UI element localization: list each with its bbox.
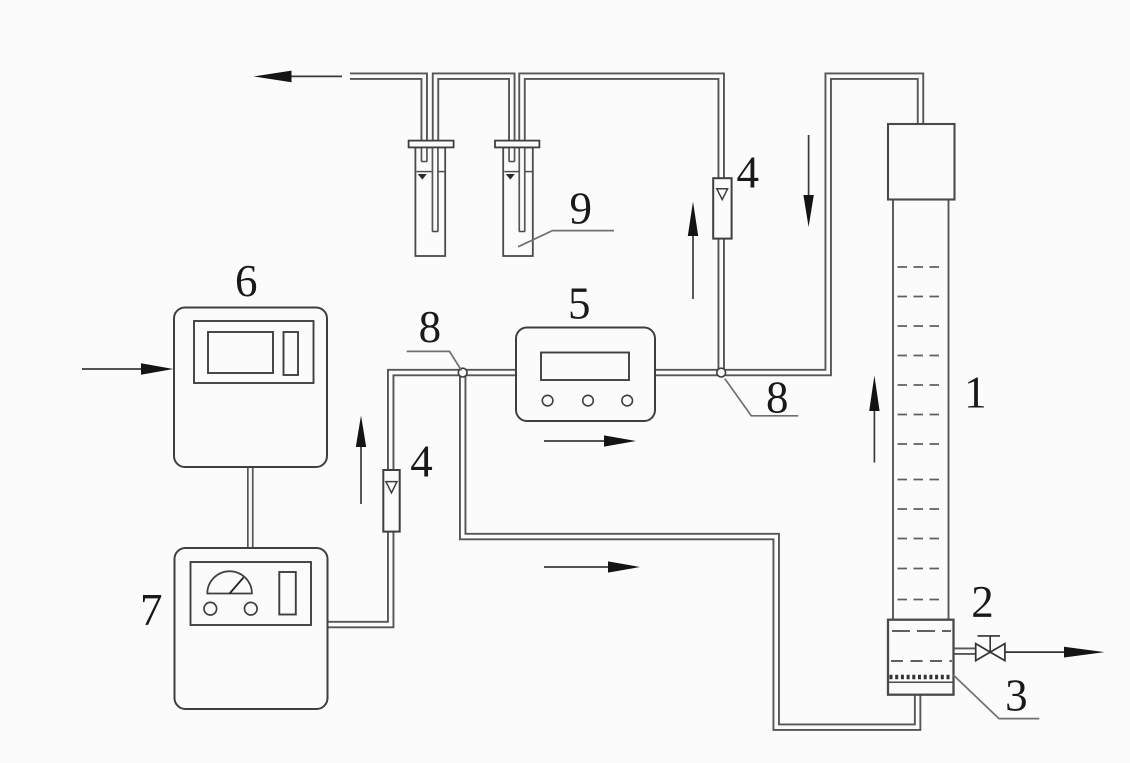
svg-text:3: 3 [1005,670,1028,720]
svg-text:2: 2 [971,577,994,627]
svg-text:9: 9 [569,183,592,233]
svg-text:7: 7 [140,585,163,635]
svg-text:4: 4 [410,437,433,487]
svg-text:8: 8 [766,373,789,423]
svg-text:4: 4 [736,148,759,198]
svg-text:5: 5 [568,279,591,329]
svg-text:1: 1 [964,368,987,418]
svg-text:6: 6 [235,256,258,306]
svg-text:8: 8 [419,302,442,352]
